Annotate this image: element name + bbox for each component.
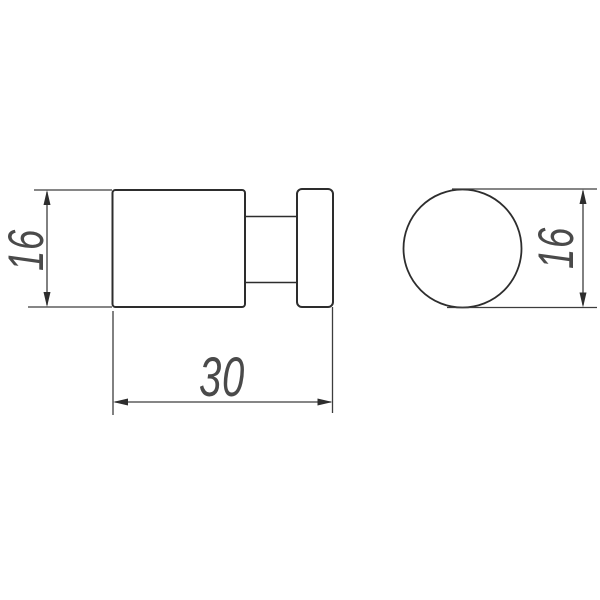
- side-view: [113, 189, 334, 307]
- diameter-dimension-label: 16: [528, 227, 584, 269]
- front-view: [404, 190, 522, 308]
- height-arrow-down-icon: [44, 292, 51, 307]
- technical-drawing-canvas: 16 30 16: [0, 0, 600, 600]
- length-dimension: 30: [113, 307, 333, 415]
- knob-body-outline: [113, 190, 246, 307]
- diameter-arrow-up-icon: [580, 189, 587, 204]
- diameter-arrow-down-icon: [580, 293, 587, 308]
- height-dimension: 16: [0, 190, 112, 307]
- length-arrow-left-icon: [113, 399, 128, 406]
- drawing-page: 16 30 16: [0, 0, 600, 600]
- height-arrow-up-icon: [44, 190, 51, 205]
- front-view-circle: [404, 190, 522, 308]
- length-dimension-label: 30: [199, 345, 245, 408]
- knob-flange-outline: [297, 189, 333, 307]
- length-arrow-right-icon: [318, 399, 333, 406]
- height-dimension-label: 16: [0, 229, 54, 271]
